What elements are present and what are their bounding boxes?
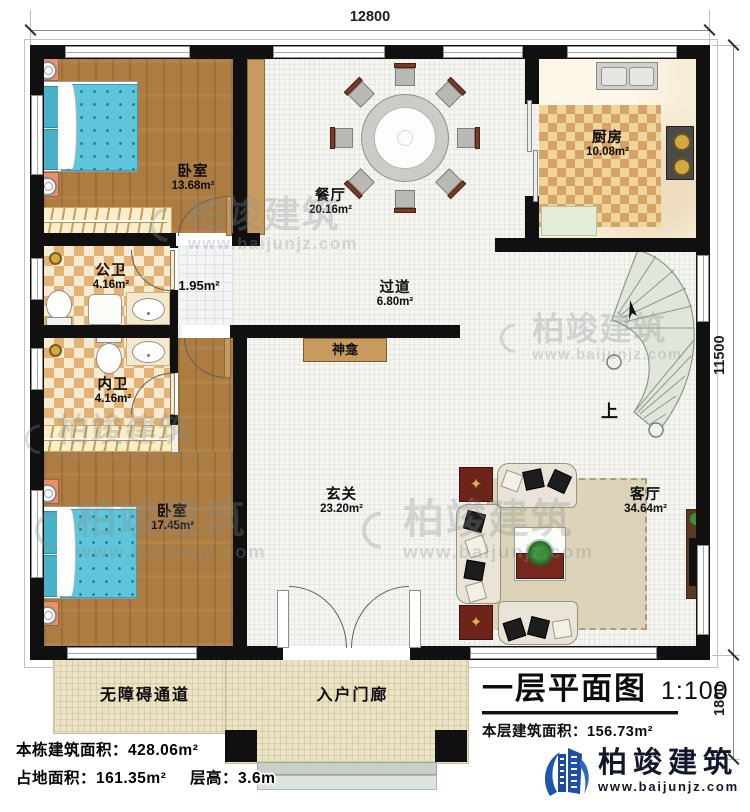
- room-label-bedroom2: 卧室 17.45m²: [120, 504, 225, 533]
- door-leaf: [226, 196, 232, 236]
- footprint-label: 占地面积：: [16, 770, 96, 787]
- sink-bowl: [629, 67, 654, 86]
- room-label-inner-bath: 内卫 4.16m²: [72, 377, 154, 406]
- dining-chair: [456, 127, 480, 149]
- plan-title: 一层平面图: [482, 663, 647, 708]
- door-frame: [409, 590, 421, 648]
- room-name: 玄关: [294, 487, 389, 503]
- title-block: 一层平面图 1:100 本层建筑面积：156.73m²: [482, 663, 729, 741]
- burner-icon: [673, 158, 691, 176]
- window: [31, 348, 43, 390]
- window: [567, 46, 677, 58]
- room-area: 23.20m²: [294, 503, 389, 516]
- wall: [525, 59, 539, 104]
- sink-bowl: [601, 67, 627, 86]
- room-area: 6.80m²: [350, 296, 440, 309]
- stats-line-1: 本栋建筑面积：428.06m²: [16, 737, 275, 765]
- closet-rod: [36, 220, 167, 222]
- kitchen-cabinet: [541, 206, 597, 236]
- window: [31, 258, 43, 300]
- sliding-door: [527, 100, 532, 152]
- bed-bedroom1: [34, 81, 138, 172]
- sofa-cushion: [503, 618, 527, 642]
- porch-column: [435, 730, 467, 762]
- room-label-public-bath: 公卫 4.16m²: [70, 263, 152, 292]
- door-frame: [277, 590, 289, 648]
- door-opening: [182, 325, 230, 338]
- stairs-up-label: 上: [595, 402, 625, 421]
- sofa-cushion: [500, 469, 523, 492]
- room-name: 公卫: [70, 263, 152, 279]
- sink-basin: [132, 341, 165, 363]
- room-area: 20.16m²: [283, 204, 378, 217]
- ramp-text: 无障碍通道: [60, 687, 230, 705]
- shrine-label: 神龛: [332, 342, 358, 357]
- floor-plan: ✦ ✦: [0, 0, 750, 812]
- plan-scale: 1:100: [661, 677, 729, 706]
- room-name: 客厅: [598, 487, 693, 503]
- kitchen-sink: [596, 62, 658, 90]
- brand-text: 柏竣建筑 www.baijunjz.com: [598, 748, 739, 793]
- wall: [495, 238, 710, 252]
- room-label-bedroom1: 卧室 13.68m²: [140, 164, 246, 193]
- window: [470, 647, 657, 659]
- dimension-right-upper: 11500: [712, 305, 728, 375]
- height-value: 3.6m: [238, 770, 275, 787]
- room-label-small-hall: 1.95m²: [168, 279, 230, 294]
- window: [443, 46, 523, 58]
- stats-line-2: 占地面积：161.35m² 层高：3.6m: [16, 765, 275, 793]
- dining-chair: [394, 63, 416, 87]
- wall: [230, 325, 460, 338]
- wall: [525, 196, 539, 238]
- dining-chair: [394, 189, 416, 213]
- closet-rod: [36, 438, 167, 440]
- room-area: 1.95m²: [168, 279, 230, 294]
- stairs-up-text: 上: [595, 402, 625, 421]
- footprint-value: 161.35m²: [96, 770, 166, 787]
- toilet: [96, 343, 122, 374]
- room-label-kitchen: 厨房 10.08m²: [560, 130, 655, 159]
- entry-door-opening: [283, 646, 410, 660]
- room-name: 卧室: [120, 504, 225, 520]
- door-leaf: [170, 373, 175, 415]
- room-name: 餐厅: [283, 188, 378, 204]
- room-label-dining: 餐厅 20.16m²: [283, 188, 378, 217]
- sofa-cushion: [464, 534, 488, 558]
- room-label-living: 客厅 34.64m²: [598, 487, 693, 516]
- floor-area-label: 本层建筑面积：: [482, 724, 587, 740]
- wall: [30, 325, 178, 338]
- room-area: 10.08m²: [560, 146, 655, 159]
- building-area-value: 428.06m²: [128, 742, 198, 759]
- room-name: 过道: [350, 280, 440, 296]
- porch-step-1: [257, 762, 437, 775]
- sofa-cushion: [463, 510, 486, 533]
- bed-sheet: [58, 84, 77, 169]
- ramp-label: 无障碍通道: [60, 687, 230, 705]
- brand-block: 柏竣建筑 www.baijunjz.com: [538, 742, 739, 800]
- end-table: ✦: [459, 605, 493, 640]
- dining-chair: [330, 127, 354, 149]
- room-label-entry: 玄关 23.20m²: [294, 487, 389, 516]
- sofa-cushion: [522, 468, 545, 491]
- room-area: 34.64m²: [598, 503, 693, 516]
- door-leaf: [224, 338, 231, 378]
- height-label: 层高：: [190, 770, 238, 787]
- sofa-left: [456, 504, 501, 604]
- washing-machine: [88, 294, 122, 325]
- window: [65, 46, 190, 58]
- closet-2: [31, 425, 172, 452]
- brand-name: 柏竣建筑: [598, 748, 739, 778]
- room-name: 内卫: [72, 377, 154, 393]
- plant-icon: [528, 541, 552, 565]
- wall: [233, 338, 247, 646]
- title-underline: [482, 711, 678, 715]
- sofa-top: [497, 463, 577, 508]
- shower-head-icon: [49, 344, 62, 357]
- sofa-cushion: [463, 559, 485, 581]
- sink-basin: [132, 298, 165, 321]
- room-name: 厨房: [560, 130, 655, 146]
- sliding-door: [533, 150, 538, 202]
- sideboard: [247, 59, 265, 235]
- shrine: 神龛: [303, 338, 387, 362]
- shower-head-icon: [49, 252, 62, 265]
- wall: [233, 45, 247, 245]
- window: [273, 46, 385, 58]
- porch-text: 入户门廊: [280, 687, 425, 705]
- sofa-cushion: [552, 619, 573, 640]
- room-label-corridor: 过道 6.80m²: [350, 280, 440, 309]
- dimension-top: 12800: [320, 9, 420, 25]
- window: [31, 490, 43, 578]
- room-area: 13.68m²: [140, 180, 246, 193]
- room-area: 17.45m²: [120, 520, 225, 533]
- dimension-line-top: [30, 30, 710, 31]
- room-area: 4.16m²: [70, 279, 152, 292]
- building-area-label: 本栋建筑面积：: [16, 742, 128, 759]
- room-name: 卧室: [140, 164, 246, 180]
- floor-area-value: 156.73m²: [587, 724, 653, 740]
- window: [697, 255, 709, 322]
- end-table: ✦: [459, 467, 493, 502]
- burner-icon: [673, 133, 691, 151]
- brand-url: www.baijunjz.com: [598, 779, 739, 794]
- stove: [666, 126, 694, 180]
- room-area: 4.16m²: [72, 393, 154, 406]
- sofa-cushion: [547, 469, 572, 494]
- porch-step-2: [257, 775, 437, 790]
- building-stats: 本栋建筑面积：428.06m² 占地面积：161.35m² 层高：3.6m: [16, 737, 275, 793]
- brand-logo-icon: [538, 742, 590, 800]
- window: [31, 95, 43, 175]
- porch-label: 入户门廊: [280, 687, 425, 705]
- sofa-bottom: [498, 601, 578, 645]
- window: [67, 647, 197, 659]
- closet-1: [31, 207, 172, 234]
- sofa-cushion: [465, 581, 487, 603]
- bed-sheet: [57, 509, 76, 596]
- dining-table-center: [397, 130, 413, 146]
- window: [697, 545, 709, 635]
- sofa-cushion: [527, 616, 550, 639]
- toilet: [46, 290, 72, 320]
- floor-area-line: 本层建筑面积：156.73m²: [482, 720, 729, 741]
